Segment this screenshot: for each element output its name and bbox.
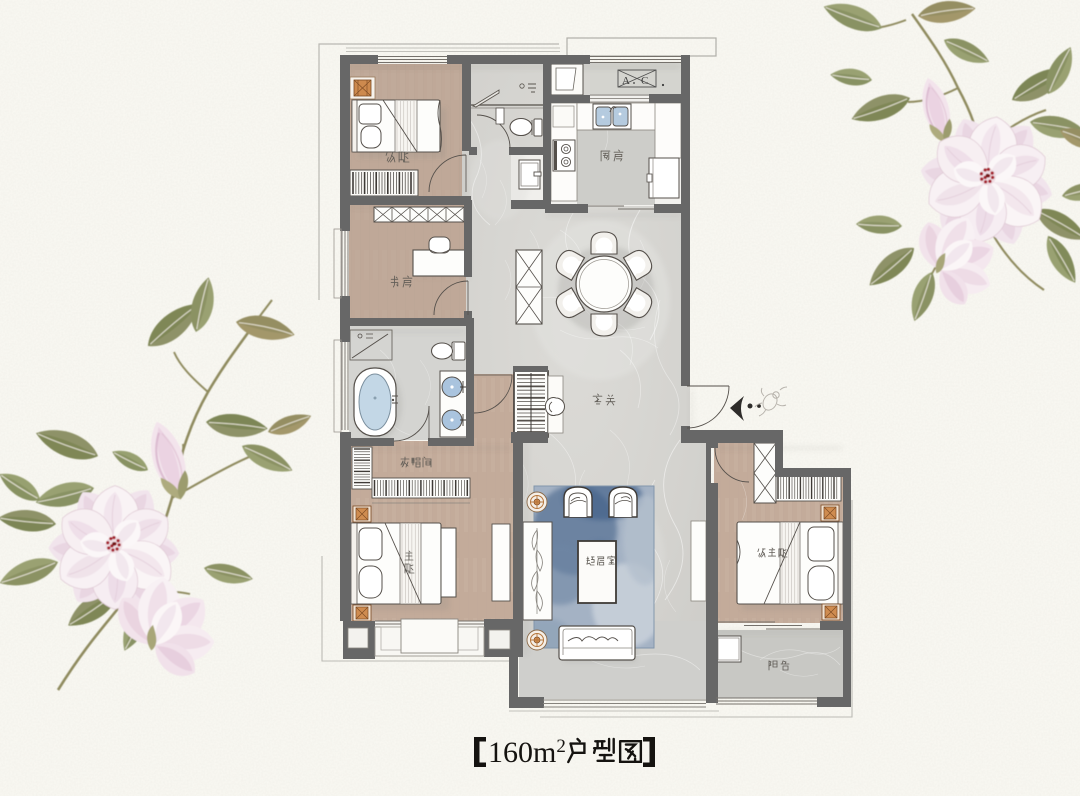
svg-text:A: A bbox=[622, 75, 630, 87]
svg-text:C: C bbox=[641, 75, 648, 87]
svg-text:160m2: 160m2 bbox=[488, 736, 566, 769]
